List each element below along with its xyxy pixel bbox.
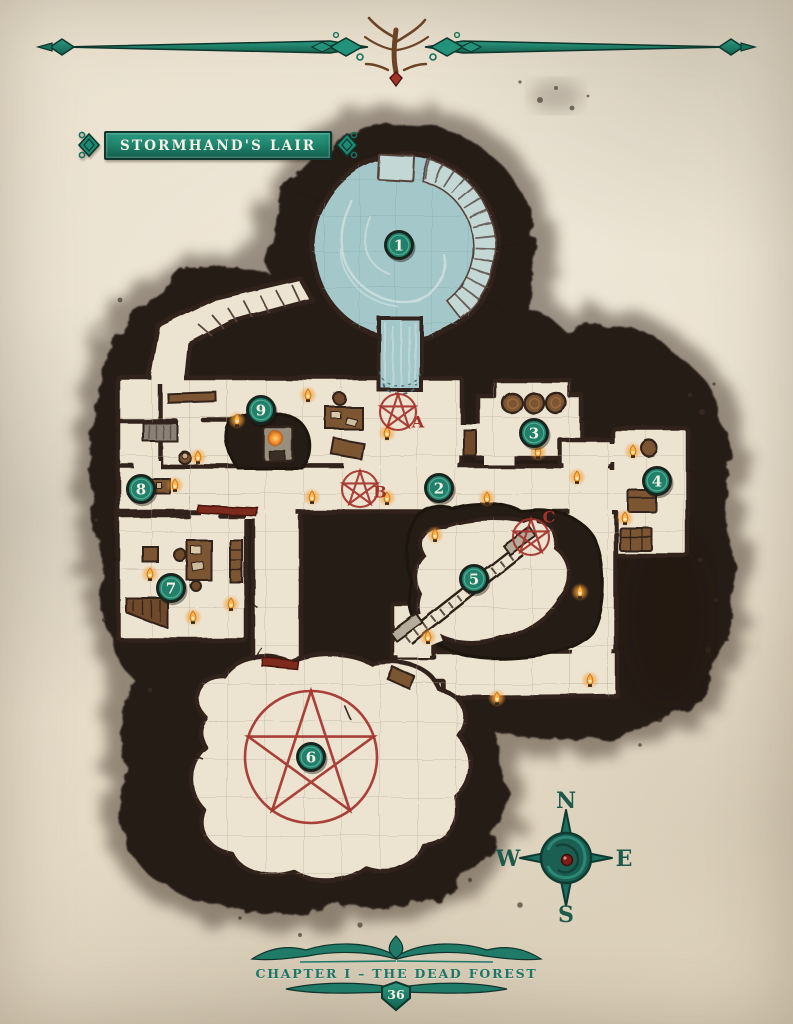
work-table xyxy=(326,407,362,429)
map-page: ABC123456789 N E S W xyxy=(0,0,793,1024)
ritual-label-B: B xyxy=(373,483,387,502)
room-marker-4: 4 xyxy=(644,468,674,499)
top-divider xyxy=(38,18,755,86)
svg-text:9: 9 xyxy=(256,402,266,420)
torch-icon xyxy=(222,595,240,613)
compass-s: S xyxy=(558,902,574,928)
torch-icon xyxy=(488,689,506,707)
torch-icon xyxy=(571,583,589,601)
torch-icon xyxy=(624,442,642,460)
bookshelf xyxy=(230,540,242,582)
room-marker-3: 3 xyxy=(521,420,551,451)
compass-n: N xyxy=(556,788,576,814)
small-table xyxy=(143,547,158,562)
ritual-label-C: C xyxy=(543,508,556,527)
svg-text:5: 5 xyxy=(469,571,479,589)
pedestal xyxy=(178,451,190,463)
svg-text:7: 7 xyxy=(166,580,176,598)
keg xyxy=(641,440,657,456)
torch-icon xyxy=(478,489,496,507)
torch-icon xyxy=(568,468,586,486)
torch-icon xyxy=(228,411,246,429)
torch-icon xyxy=(184,608,202,626)
torch-icon xyxy=(581,671,599,689)
title-banner: STORMHAND'S LAIR xyxy=(76,128,360,162)
svg-text:1: 1 xyxy=(394,237,404,255)
room-marker-5: 5 xyxy=(461,566,491,597)
desk xyxy=(187,540,211,580)
furnace xyxy=(262,426,292,460)
bench xyxy=(168,392,216,403)
room-marker-7: 7 xyxy=(158,575,188,606)
chair xyxy=(191,581,201,591)
door xyxy=(464,430,476,456)
svg-text:2: 2 xyxy=(434,480,444,498)
compass-w: W xyxy=(495,846,521,872)
svg-text:4: 4 xyxy=(652,473,662,491)
chest xyxy=(620,528,652,551)
room-marker-2: 2 xyxy=(426,475,456,506)
svg-text:3: 3 xyxy=(529,425,539,443)
banner-ornament-right xyxy=(334,128,360,162)
barrels xyxy=(502,393,566,413)
loom xyxy=(143,423,177,441)
room-marker-6: 6 xyxy=(298,744,328,775)
banner-ornament-left xyxy=(76,128,102,162)
torch-icon xyxy=(419,628,437,646)
room-marker-9: 9 xyxy=(248,397,278,428)
torch-icon xyxy=(299,386,317,404)
table-papers xyxy=(332,412,341,419)
stool xyxy=(334,393,346,405)
ritual-label-A: A xyxy=(411,413,425,432)
torch-icon xyxy=(303,488,321,506)
svg-text:8: 8 xyxy=(136,481,146,499)
torch-icon xyxy=(141,565,159,583)
page-number: 36 xyxy=(387,987,405,1002)
room-marker-1: 1 xyxy=(386,232,416,263)
room-marker-8: 8 xyxy=(128,476,158,507)
svg-text:6: 6 xyxy=(306,749,316,767)
smudge-top xyxy=(530,80,582,112)
divider-tree xyxy=(365,18,428,72)
torch-icon xyxy=(166,476,184,494)
torch-icon xyxy=(426,526,444,544)
torch-icon xyxy=(189,448,207,466)
torch-icon xyxy=(616,509,634,527)
compass-e: E xyxy=(616,846,633,872)
chapter-title: CHAPTER I – THE DEAD FOREST xyxy=(255,966,537,981)
map-title: STORMHAND'S LAIR xyxy=(104,131,332,160)
chair xyxy=(174,549,186,561)
